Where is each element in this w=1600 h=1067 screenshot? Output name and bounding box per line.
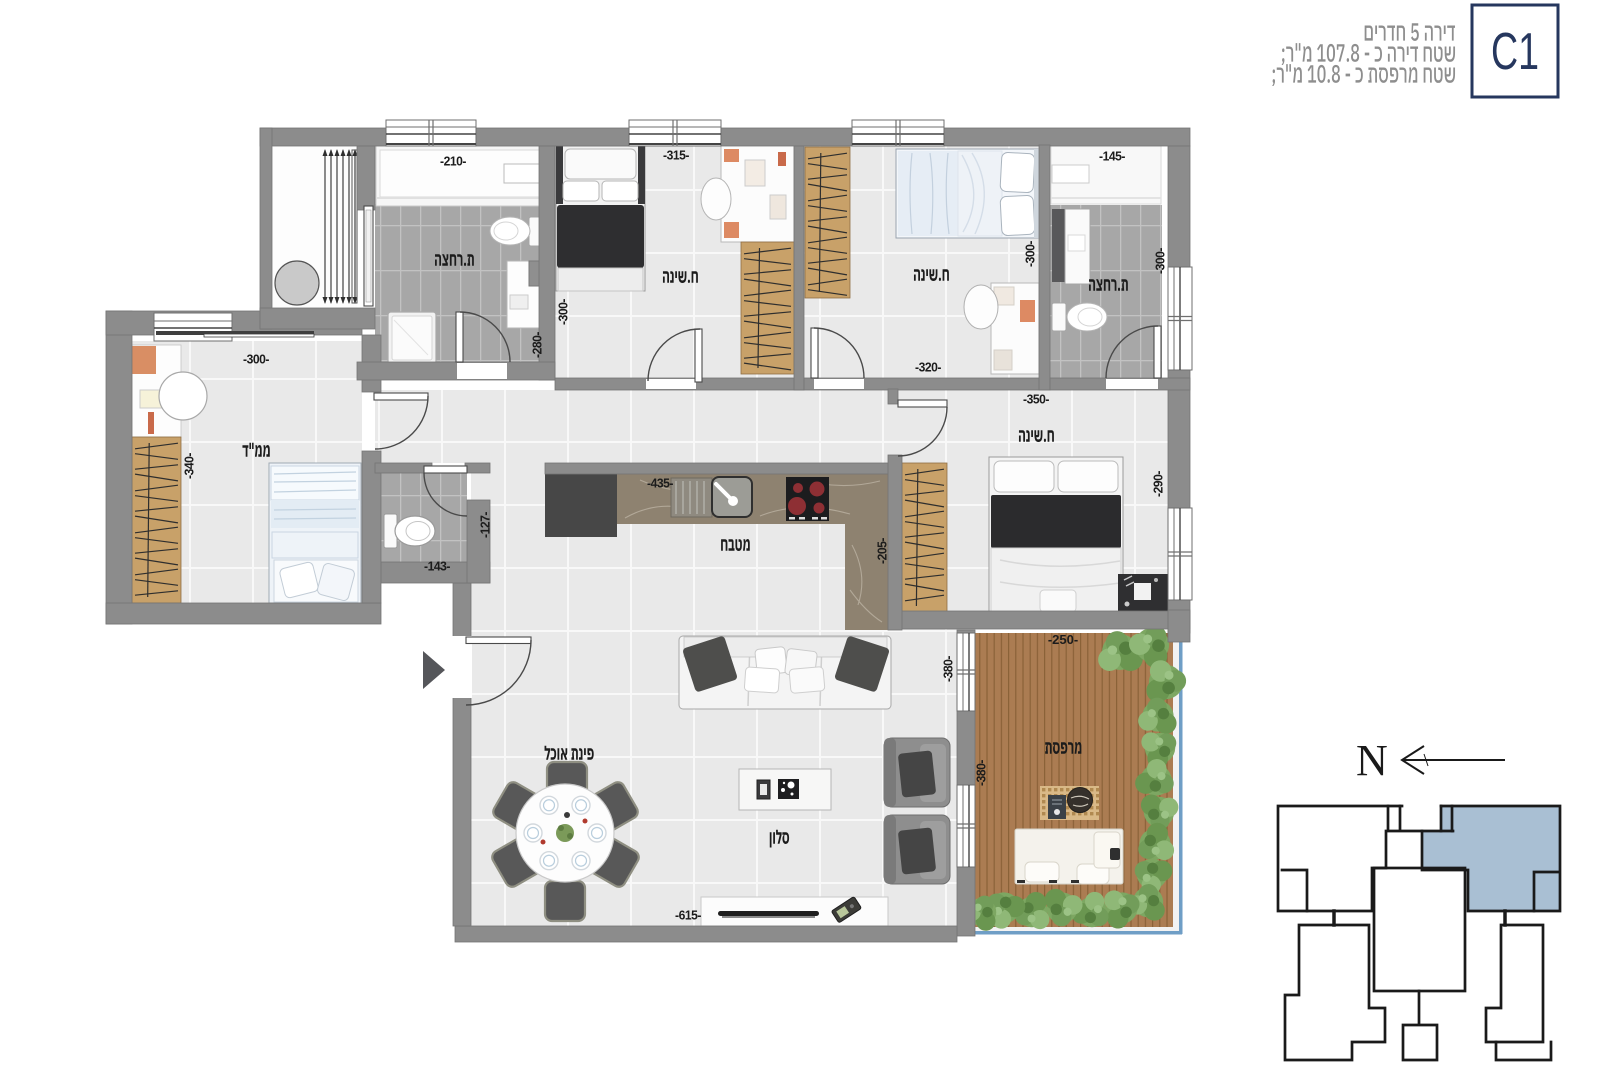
svg-text:-300-: -300- bbox=[1153, 248, 1168, 274]
svg-text:-315-: -315- bbox=[663, 148, 689, 163]
svg-text:-340-: -340- bbox=[182, 453, 197, 479]
svg-text:-615-: -615- bbox=[675, 908, 701, 923]
svg-text:-300-: -300- bbox=[556, 299, 571, 325]
svg-text:-380-: -380- bbox=[974, 760, 989, 786]
svg-text:-350-: -350- bbox=[1023, 392, 1049, 407]
svg-text:-380-: -380- bbox=[941, 656, 956, 682]
svg-text:-300-: -300- bbox=[243, 352, 269, 367]
svg-text:-280-: -280- bbox=[530, 332, 545, 358]
svg-text:-143-: -143- bbox=[424, 559, 450, 574]
svg-text:N: N bbox=[1356, 736, 1388, 785]
svg-text:-145-: -145- bbox=[1099, 149, 1125, 164]
svg-text:-290-: -290- bbox=[1151, 471, 1166, 497]
svg-text:-300-: -300- bbox=[1023, 241, 1038, 267]
svg-text:-435-: -435- bbox=[647, 476, 673, 491]
svg-text:C1: C1 bbox=[1491, 23, 1539, 81]
svg-text:-320-: -320- bbox=[915, 360, 941, 375]
svg-text:-210-: -210- bbox=[440, 154, 466, 169]
svg-text:-127-: -127- bbox=[478, 512, 493, 538]
svg-text:-205-: -205- bbox=[875, 538, 890, 564]
svg-text:-250-: -250- bbox=[1048, 632, 1078, 647]
